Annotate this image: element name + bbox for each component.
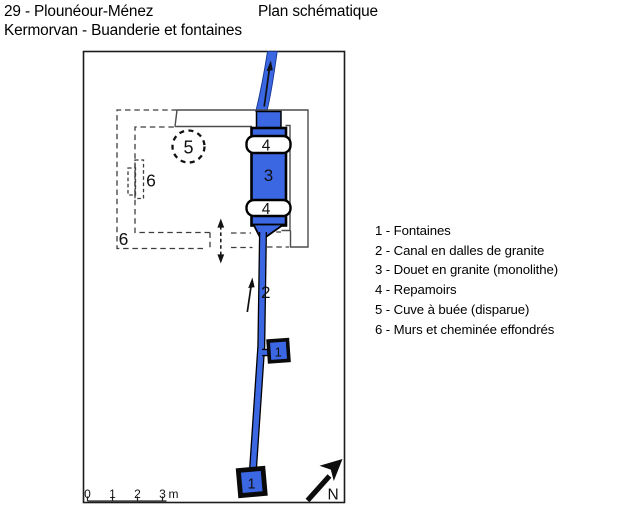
label-repamoir-top-4: 4	[262, 138, 271, 155]
label-douet-3: 3	[264, 166, 273, 185]
label-chimney-6: 6	[146, 171, 156, 191]
scale-label-3: 3	[159, 487, 166, 501]
plan-frame	[84, 52, 345, 503]
label-repamoir-bottom-4: 4	[262, 201, 271, 218]
scale-label-0: 0	[84, 487, 91, 501]
label-north-n: N	[328, 487, 339, 504]
label-cuve-5: 5	[183, 138, 193, 158]
plan-drawing: 0 1 2 3 m 5 6 6 3 4 4 2 1 1 N	[0, 0, 643, 512]
scale-unit-label: m	[169, 487, 179, 501]
scale-label-1: 1	[109, 487, 116, 501]
label-fountain-a-1: 1	[275, 345, 282, 360]
scale-label-2: 2	[134, 487, 141, 501]
label-walls-6: 6	[119, 229, 129, 249]
page: 29 - Plounéour-Ménez Kermorvan - Buander…	[0, 0, 643, 512]
label-fountain-b-1: 1	[247, 477, 255, 493]
label-canal-2: 2	[261, 283, 270, 302]
